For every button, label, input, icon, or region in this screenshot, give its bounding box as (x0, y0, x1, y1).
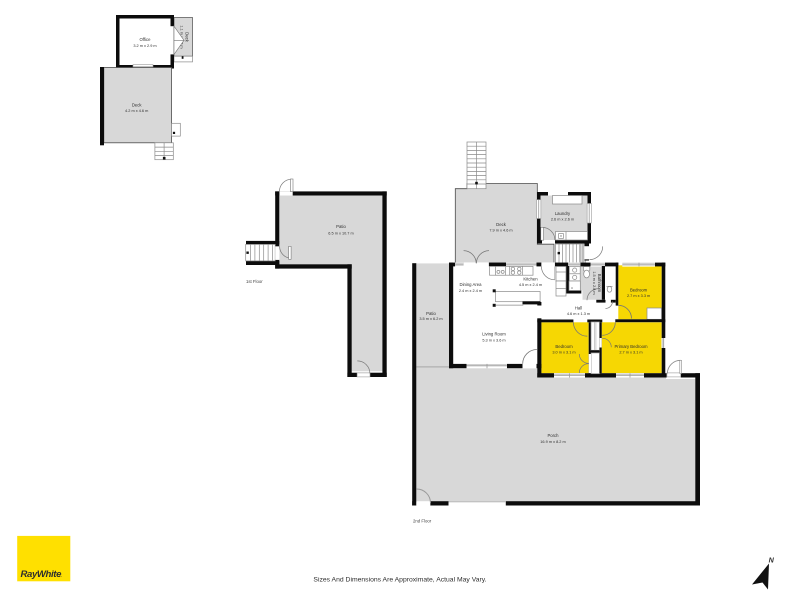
svg-text:Office: Office (139, 37, 151, 42)
svg-text:3.2 m x 2.9 m: 3.2 m x 2.9 m (133, 44, 156, 48)
svg-text:2nd Floor: 2nd Floor (413, 519, 432, 524)
svg-text:4.5 m x 2.4 m: 4.5 m x 2.4 m (519, 283, 542, 287)
svg-text:2.7 m x 3.3 m: 2.7 m x 3.3 m (627, 294, 650, 298)
svg-text:Deck: Deck (132, 103, 143, 108)
svg-text:Patio: Patio (426, 311, 436, 316)
svg-text:2.6 m x 2.6 m: 2.6 m x 2.6 m (551, 218, 574, 222)
svg-text:16.9 m x 8.2 m: 16.9 m x 8.2 m (540, 440, 565, 444)
svg-text:Primary Bedroom: Primary Bedroom (614, 344, 648, 349)
svg-text:2.7 m x 3.1 m: 2.7 m x 3.1 m (619, 351, 642, 355)
svg-text:Hall: Hall (575, 306, 582, 311)
svg-text:Bedroom: Bedroom (630, 288, 648, 293)
svg-text:2.4 m x 2.4 m: 2.4 m x 2.4 m (459, 289, 482, 293)
svg-text:3.5 m x 6.2 m: 3.5 m x 6.2 m (419, 317, 442, 321)
svg-text:Bedroom: Bedroom (555, 344, 573, 349)
svg-text:Porch: Porch (547, 433, 559, 438)
svg-text:3.0 m x 3.1 m: 3.0 m x 3.1 m (552, 351, 575, 355)
svg-text:Sizes And Dimensions Are Appro: Sizes And Dimensions Are Approximate, Ac… (313, 577, 486, 584)
svg-text:Living Room: Living Room (482, 332, 506, 337)
svg-text:Laundry: Laundry (555, 211, 571, 216)
svg-text:Deck: Deck (496, 222, 507, 227)
svg-text:4.6 m x 1.3 m: 4.6 m x 1.3 m (567, 312, 590, 316)
svg-text:Kitchen: Kitchen (523, 277, 538, 282)
svg-text:N: N (769, 556, 775, 565)
svg-text:6.5 m x 10.7 m: 6.5 m x 10.7 m (328, 231, 353, 235)
svg-text:4.2 m x 4.6 m: 4.2 m x 4.6 m (125, 109, 148, 113)
svg-text:5.3 m x 3.6 m: 5.3 m x 3.6 m (482, 339, 505, 343)
svg-text:7.9 m x 4.6 m: 7.9 m x 4.6 m (489, 229, 512, 233)
svg-text:Patio: Patio (336, 224, 346, 229)
svg-text:Dining Area: Dining Area (460, 282, 483, 287)
svg-text:1st Floor: 1st Floor (246, 279, 263, 284)
svg-text:RayWhite.: RayWhite. (21, 569, 63, 580)
